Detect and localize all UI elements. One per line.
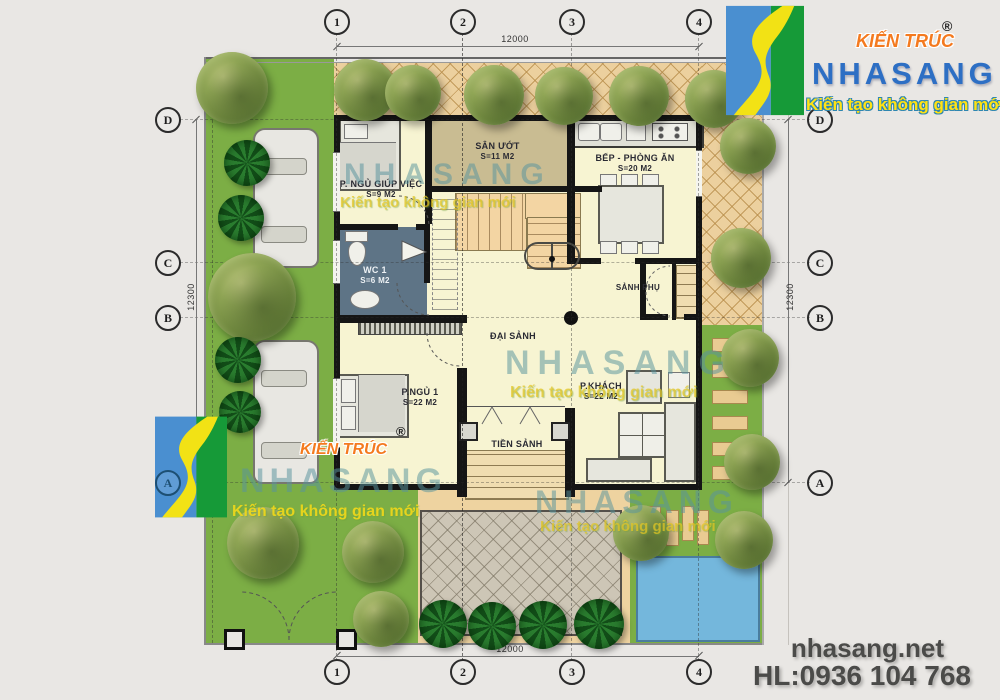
brand-name-watermark: NHASANG (240, 462, 447, 501)
grid-bubble-row-b: B (155, 305, 181, 331)
brand-name: NHASANG (812, 56, 997, 92)
door-swing-sanhphu-bottom (646, 292, 670, 316)
watermark-tagline: Kiến tạo không gian mới (540, 518, 716, 535)
grid-bubble-row-a-right: A (807, 470, 833, 496)
grid-bubble-col-3b: 3 (559, 659, 585, 685)
car-windshield (261, 370, 307, 387)
room-name: SÂN ƯỚT (440, 140, 555, 152)
brand-logo-mark (726, 3, 804, 118)
tree (385, 65, 441, 121)
palm-shrub (224, 140, 270, 186)
dim-line-top (337, 46, 699, 47)
tree (535, 67, 593, 125)
dim-line-bottom (337, 656, 699, 657)
tree (609, 66, 669, 126)
watermark-tagline: Kiến tạo không gian mới (340, 194, 516, 211)
palm-shrub (574, 599, 624, 649)
brand-logo-mark (155, 408, 227, 526)
brand-tagline-watermark: Kiến tạo không gian mới (232, 503, 419, 521)
room-label-wc: WC 1 S=6 M2 (340, 264, 410, 287)
entrance-door-leaf (520, 407, 540, 424)
grid-bubble-col-2b: 2 (450, 659, 476, 685)
room-name: ĐẠI SẢNH (478, 330, 548, 342)
watermark-name: NHASANG (505, 344, 733, 383)
room-name: P.NGỦ 1 (385, 386, 455, 398)
registered-mark: ® (942, 18, 952, 34)
palm-shrub (215, 337, 261, 383)
room-name: WC 1 (340, 264, 410, 276)
room-label-bep: BẾP - PHÒNG ĂN S=20 M2 (570, 152, 700, 175)
room-label-sanhphu: SẢNH PHỤ (606, 283, 670, 294)
grid-bubble-row-b-right: B (807, 305, 833, 331)
entrance-door-leaf (482, 407, 502, 424)
tree (196, 52, 268, 124)
grid-bubble-row-c-right: C (807, 250, 833, 276)
room-label-tiensanh: TIỀN SẢNH (467, 438, 567, 450)
room-area: S=20 M2 (570, 164, 700, 175)
grid-axis-1 (336, 33, 337, 661)
dim-text-top: 12000 (480, 34, 550, 44)
shower-symbol (402, 241, 426, 261)
tree (353, 591, 409, 647)
brand-kien-truc: KIẾN TRÚC (300, 441, 387, 459)
room-name: BẾP - PHÒNG ĂN (570, 152, 700, 164)
brand-tagline: Kiến tạo không gian mới (806, 95, 1000, 115)
palm-shrub (218, 195, 264, 241)
grid-bubble-col-1: 1 (324, 9, 350, 35)
dim-text-left: 12300 (186, 277, 196, 317)
dim-text-right: 12300 (785, 277, 795, 317)
grid-bubble-col-3: 3 (559, 9, 585, 35)
door-swing-bedroom1 (427, 333, 460, 366)
grid-bubble-col-2: 2 (450, 9, 476, 35)
room-name: SẢNH PHỤ (606, 283, 670, 294)
grid-bubble-row-a: A (155, 470, 181, 496)
grid-bubble-col-4b: 4 (686, 659, 712, 685)
room-label-daisanh: ĐẠI SẢNH (478, 330, 548, 342)
gate-swing-right (289, 592, 337, 640)
gate-swing-left (241, 592, 289, 640)
brand-kien-truc: KIẾN TRÚC (856, 31, 954, 52)
tree (208, 253, 296, 341)
tree (724, 434, 780, 490)
grid-axis-2 (462, 33, 463, 661)
palm-shrub (419, 600, 467, 648)
watermark-tagline: Kiến tạo không gian mới (510, 384, 697, 402)
registered-mark: ® (396, 424, 406, 439)
room-area: S=6 M2 (340, 276, 410, 287)
grid-bubble-row-c: C (155, 250, 181, 276)
tree (711, 228, 771, 288)
tree (720, 118, 776, 174)
tree (464, 65, 524, 125)
watermark-name: NHASANG (535, 484, 739, 521)
room-label-ngu1: P.NGỦ 1 S=22 M2 (385, 386, 455, 409)
room-name: TIỀN SẢNH (467, 438, 567, 450)
palm-shrub (519, 601, 567, 649)
site-plan-canvas: P. NGỦ GIÚP VIỆC S=9 M2 SÂN ƯỚT S=11 M2 … (0, 0, 1000, 700)
palm-shrub (468, 602, 516, 650)
grid-bubble-col-1b: 1 (324, 659, 350, 685)
car-rear-window (261, 226, 307, 243)
footer-hotline: HL:0936 104 768 (728, 660, 996, 692)
room-area: S=22 M2 (385, 398, 455, 409)
tree (342, 521, 404, 583)
grid-bubble-col-4: 4 (686, 9, 712, 35)
door-swing-wc (397, 283, 429, 315)
grid-bubble-row-d: D (155, 107, 181, 133)
watermark-name: NHASANG (344, 158, 552, 192)
